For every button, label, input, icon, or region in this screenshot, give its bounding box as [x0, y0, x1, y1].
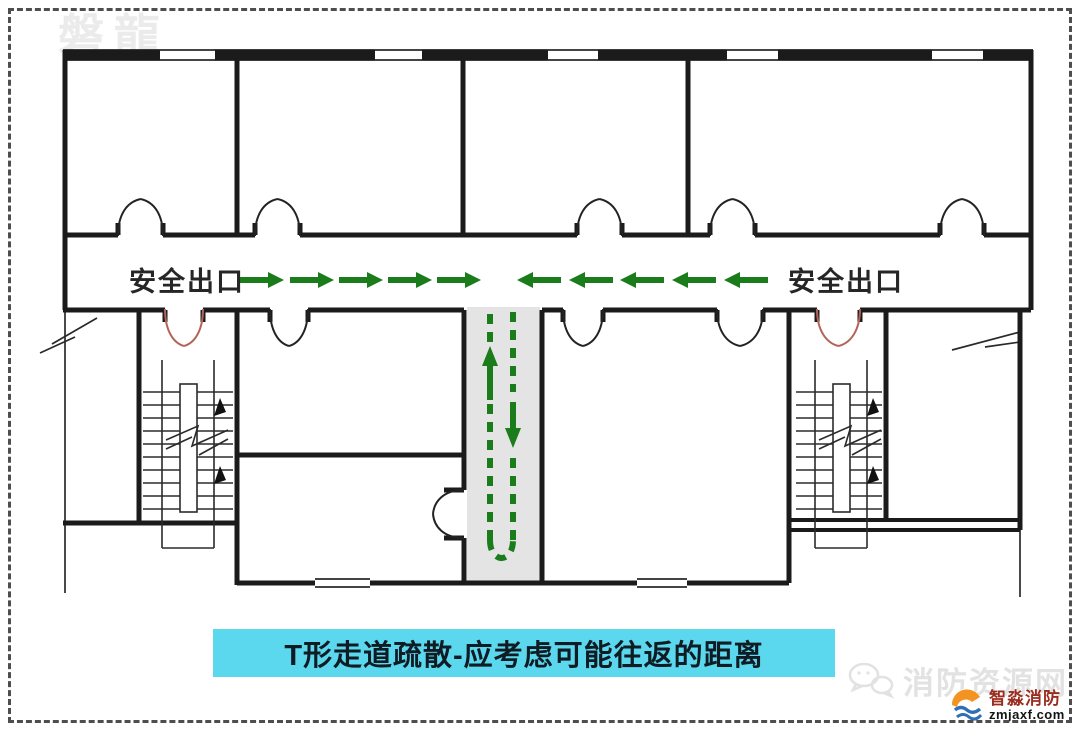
- evacuation-arrow: [620, 272, 664, 288]
- evacuation-arrow: [388, 272, 432, 288]
- t-corridor-shading: [467, 307, 540, 581]
- evacuation-arrow: [724, 272, 768, 288]
- exit-label-right: 安全出口: [788, 266, 904, 297]
- room-doors-top: [118, 199, 984, 236]
- brand-name: 智淼消防: [989, 690, 1065, 708]
- evacuation-arrow: [517, 272, 561, 288]
- evacuation-arrow: [672, 272, 716, 288]
- evacuation-arrow: [437, 272, 481, 288]
- brand-domain: zmjaxf.com: [989, 708, 1065, 722]
- floor-plan-drawing: 安全出口 安全出口: [0, 0, 1080, 731]
- evacuation-arrow: [290, 272, 334, 288]
- wall-break-left: [40, 318, 97, 353]
- exit-label-left: 安全出口: [129, 266, 245, 297]
- wall-break-right: [952, 332, 1020, 350]
- caption-text: T形走道疏散-应考虑可能往返的距离: [284, 632, 763, 674]
- evacuation-arrow: [240, 272, 284, 288]
- evacuation-arrow: [569, 272, 613, 288]
- brand-logo-icon: [948, 688, 984, 724]
- walls: [63, 50, 1033, 585]
- chat-bubbles-icon: [846, 660, 896, 702]
- evacuation-arrow: [339, 272, 383, 288]
- floor-plan-figure: 磐龍: [0, 0, 1080, 731]
- corridor-evacuation-arrows: [240, 272, 768, 288]
- brand-logo: 智淼消防 zmjaxf.com: [948, 688, 1065, 724]
- staircase-left: [143, 360, 233, 548]
- caption-banner: T形走道疏散-应考虑可能往返的距离: [213, 629, 835, 677]
